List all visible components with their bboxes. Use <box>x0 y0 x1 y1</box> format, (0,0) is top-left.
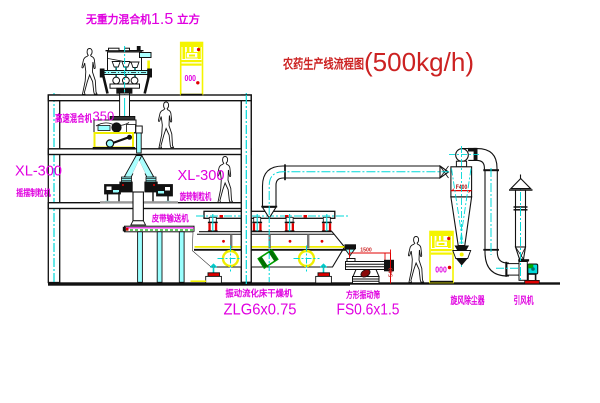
svg-text:旋转制粒机: 旋转制粒机 <box>179 191 211 203</box>
svg-text:000: 000 <box>185 73 197 83</box>
svg-text:FS0.6x1.5: FS0.6x1.5 <box>337 302 400 319</box>
svg-text:(500kg/h): (500kg/h) <box>364 47 474 77</box>
svg-text:摇摆制粒机: 摇摆制粒机 <box>16 187 51 198</box>
svg-text:高速混合机: 高速混合机 <box>55 112 92 125</box>
svg-text:旋风除尘器: 旋风除尘器 <box>450 294 485 307</box>
svg-text:振动流化床干燥机: 振动流化床干燥机 <box>225 288 292 299</box>
svg-text:引风机: 引风机 <box>514 294 534 307</box>
svg-text:000: 000 <box>435 265 447 275</box>
svg-text:540: 540 <box>389 268 395 277</box>
svg-text:方形振动筛: 方形振动筛 <box>346 289 380 300</box>
svg-text:350: 350 <box>93 109 115 124</box>
svg-text:农药生产线流程图: 农药生产线流程图 <box>282 57 364 72</box>
svg-text:ZLG6x0.75: ZLG6x0.75 <box>224 302 297 319</box>
svg-text:立方: 立方 <box>177 12 200 26</box>
svg-text:无重力混合机: 无重力混合机 <box>85 12 151 26</box>
svg-text:皮带输送机: 皮带输送机 <box>151 213 189 224</box>
svg-text:1.5: 1.5 <box>151 11 173 28</box>
svg-text:XL-300: XL-300 <box>15 163 62 180</box>
svg-text:XL-300: XL-300 <box>178 167 225 184</box>
svg-text:1500: 1500 <box>360 248 372 254</box>
